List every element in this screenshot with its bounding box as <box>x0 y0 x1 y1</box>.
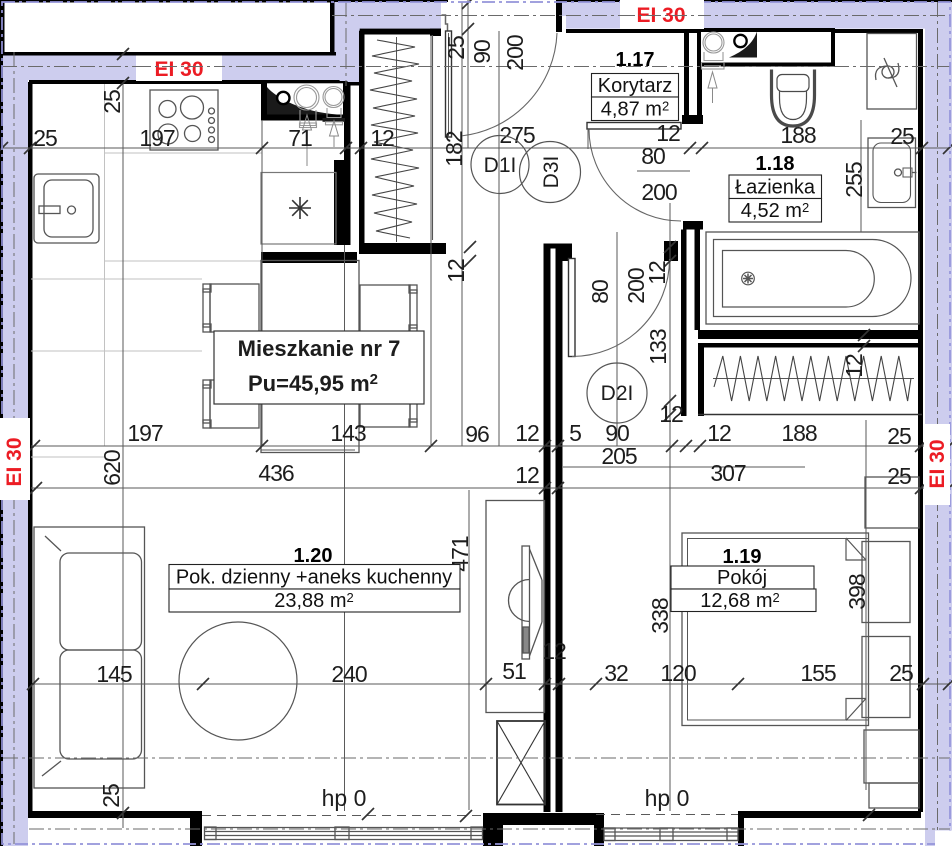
svg-text:182: 182 <box>441 131 467 167</box>
svg-text:620: 620 <box>99 450 125 486</box>
svg-text:12: 12 <box>370 125 394 151</box>
svg-text:EI 30: EI 30 <box>926 439 949 488</box>
svg-text:12: 12 <box>644 261 670 285</box>
svg-text:12: 12 <box>707 420 731 446</box>
svg-text:D1I: D1I <box>484 154 517 177</box>
svg-text:EI 30: EI 30 <box>3 437 26 486</box>
svg-text:Pok. dzienny +aneks kuchenny: Pok. dzienny +aneks kuchenny <box>176 567 452 589</box>
svg-text:25: 25 <box>889 660 913 686</box>
svg-text:25: 25 <box>98 784 124 808</box>
svg-text:200: 200 <box>641 179 677 205</box>
svg-text:25: 25 <box>99 90 125 114</box>
svg-text:197: 197 <box>139 125 175 151</box>
svg-text:1.18: 1.18 <box>756 153 795 175</box>
svg-text:12: 12 <box>443 259 469 283</box>
svg-text:1.20: 1.20 <box>294 545 333 567</box>
svg-text:275: 275 <box>499 122 535 148</box>
svg-text:25: 25 <box>887 463 911 489</box>
svg-text:4,52 m2: 4,52 m2 <box>741 200 809 222</box>
svg-text:197: 197 <box>127 420 163 446</box>
svg-text:80: 80 <box>641 143 665 169</box>
svg-text:hp 0: hp 0 <box>645 785 690 811</box>
svg-text:Mieszkanie nr 7: Mieszkanie nr 7 <box>238 336 401 361</box>
svg-text:32: 32 <box>604 660 628 686</box>
svg-text:133: 133 <box>645 329 671 365</box>
svg-text:143: 143 <box>330 420 366 446</box>
svg-text:12: 12 <box>542 638 566 664</box>
svg-text:436: 436 <box>258 460 294 486</box>
svg-text:Pokój: Pokój <box>717 567 767 589</box>
svg-text:205: 205 <box>601 443 637 469</box>
svg-text:12: 12 <box>515 420 539 446</box>
svg-text:12: 12 <box>841 354 867 378</box>
svg-text:12: 12 <box>515 462 539 488</box>
svg-text:96: 96 <box>465 421 489 447</box>
svg-text:EI 30: EI 30 <box>154 58 203 81</box>
svg-text:5: 5 <box>569 420 581 446</box>
svg-text:hp 0: hp 0 <box>322 785 367 811</box>
svg-text:90: 90 <box>469 40 495 64</box>
svg-text:155: 155 <box>800 660 836 686</box>
svg-text:1.17: 1.17 <box>616 49 655 71</box>
svg-text:D3I: D3I <box>540 156 563 189</box>
svg-text:23,88 m2: 23,88 m2 <box>274 590 354 612</box>
svg-text:338: 338 <box>647 598 673 634</box>
svg-text:240: 240 <box>331 661 367 687</box>
svg-text:25: 25 <box>443 36 469 60</box>
svg-text:80: 80 <box>587 280 613 304</box>
svg-text:51: 51 <box>502 658 526 684</box>
svg-text:12,68 m2: 12,68 m2 <box>700 590 780 612</box>
svg-text:1.19: 1.19 <box>723 546 762 568</box>
svg-text:Pu=45,95 m2: Pu=45,95 m2 <box>248 371 378 396</box>
svg-text:188: 188 <box>781 420 817 446</box>
svg-text:145: 145 <box>96 661 132 687</box>
svg-text:25: 25 <box>33 125 57 151</box>
svg-text:255: 255 <box>841 162 867 198</box>
svg-text:12: 12 <box>659 401 683 427</box>
svg-text:188: 188 <box>780 122 816 148</box>
svg-text:Łazienka: Łazienka <box>735 177 816 199</box>
svg-text:25: 25 <box>887 423 911 449</box>
svg-text:120: 120 <box>660 660 696 686</box>
svg-text:D2I: D2I <box>601 382 634 405</box>
svg-text:398: 398 <box>844 574 870 610</box>
svg-text:307: 307 <box>710 460 746 486</box>
svg-text:71: 71 <box>288 125 312 151</box>
svg-text:4,87 m2: 4,87 m2 <box>601 99 669 121</box>
svg-text:200: 200 <box>502 35 528 71</box>
svg-text:Korytarz: Korytarz <box>598 75 672 97</box>
svg-text:25: 25 <box>890 123 914 149</box>
